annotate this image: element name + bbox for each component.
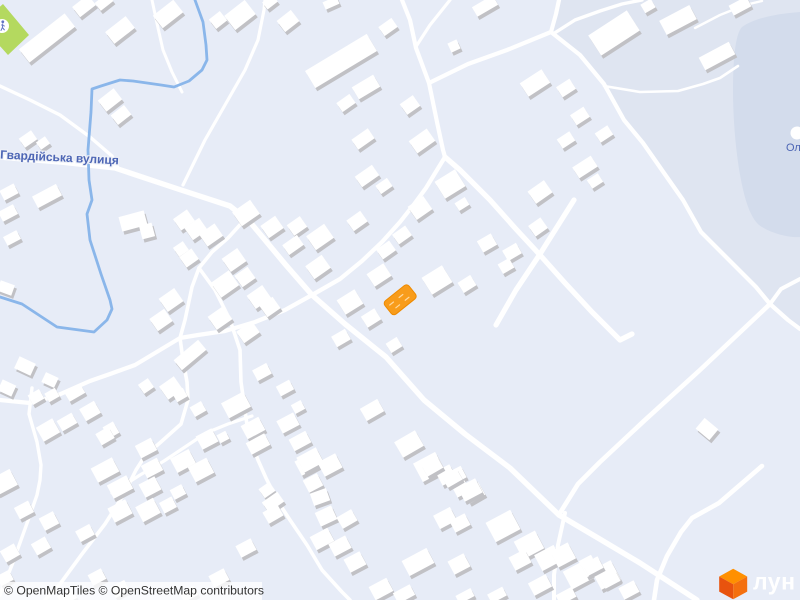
svg-text:© OpenMapTiles © OpenStreetMap: © OpenMapTiles © OpenStreetMap contribut… (4, 584, 264, 598)
svg-text:лун: лун (753, 569, 796, 595)
svg-text:Ол: Ол (786, 142, 800, 154)
